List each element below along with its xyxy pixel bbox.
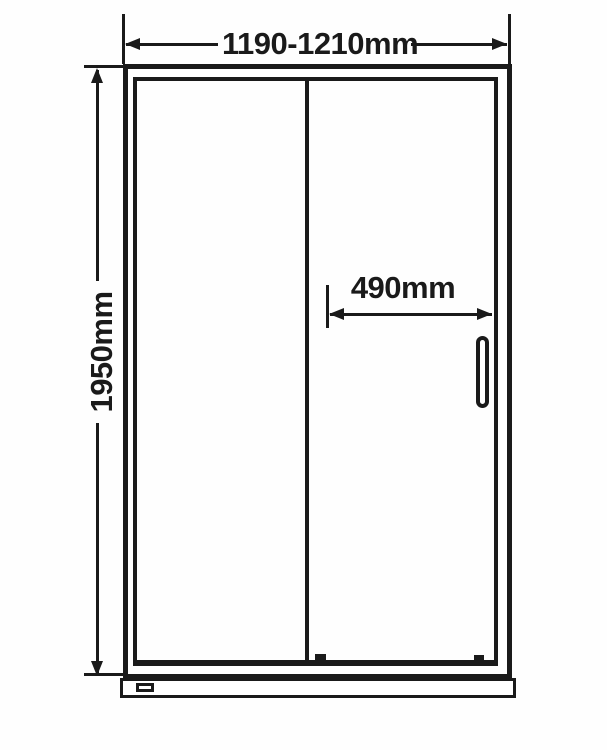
arrowhead-left-icon	[329, 308, 344, 320]
arrowhead-right-icon	[492, 38, 507, 50]
width-dimension-label: 1190-1210mm	[222, 28, 400, 59]
arrowhead-left-icon	[125, 38, 140, 50]
arrowhead-right-icon	[477, 308, 492, 320]
door-frame-outer	[123, 64, 512, 679]
height-dimension-label: 1950mm	[86, 281, 118, 423]
handle-offset-dimension-label: 490mm	[338, 272, 468, 303]
glass-panel-divider	[305, 80, 309, 661]
door-frame-inner-right	[494, 77, 498, 666]
door-roller-right	[474, 655, 484, 661]
tray-foot	[136, 683, 154, 692]
height-dimension-line-top	[96, 70, 99, 284]
height-extension-line-bottom	[84, 673, 123, 676]
height-dimension-line-bottom	[96, 418, 99, 674]
shower-door-technical-drawing: 1190-1210mm 1950mm 490mm	[0, 0, 607, 750]
door-roller-left	[315, 654, 326, 661]
door-handle	[476, 336, 489, 408]
width-extension-line-right	[508, 14, 511, 64]
door-frame-inner-left	[133, 77, 137, 666]
shower-tray	[120, 678, 516, 698]
arrowhead-up-icon	[91, 68, 103, 83]
arrowhead-down-icon	[91, 661, 103, 676]
height-extension-line-top	[84, 65, 123, 68]
door-frame-inner-top	[133, 77, 498, 81]
offset-dimension-line	[330, 313, 492, 316]
offset-reference-tick	[326, 285, 329, 328]
